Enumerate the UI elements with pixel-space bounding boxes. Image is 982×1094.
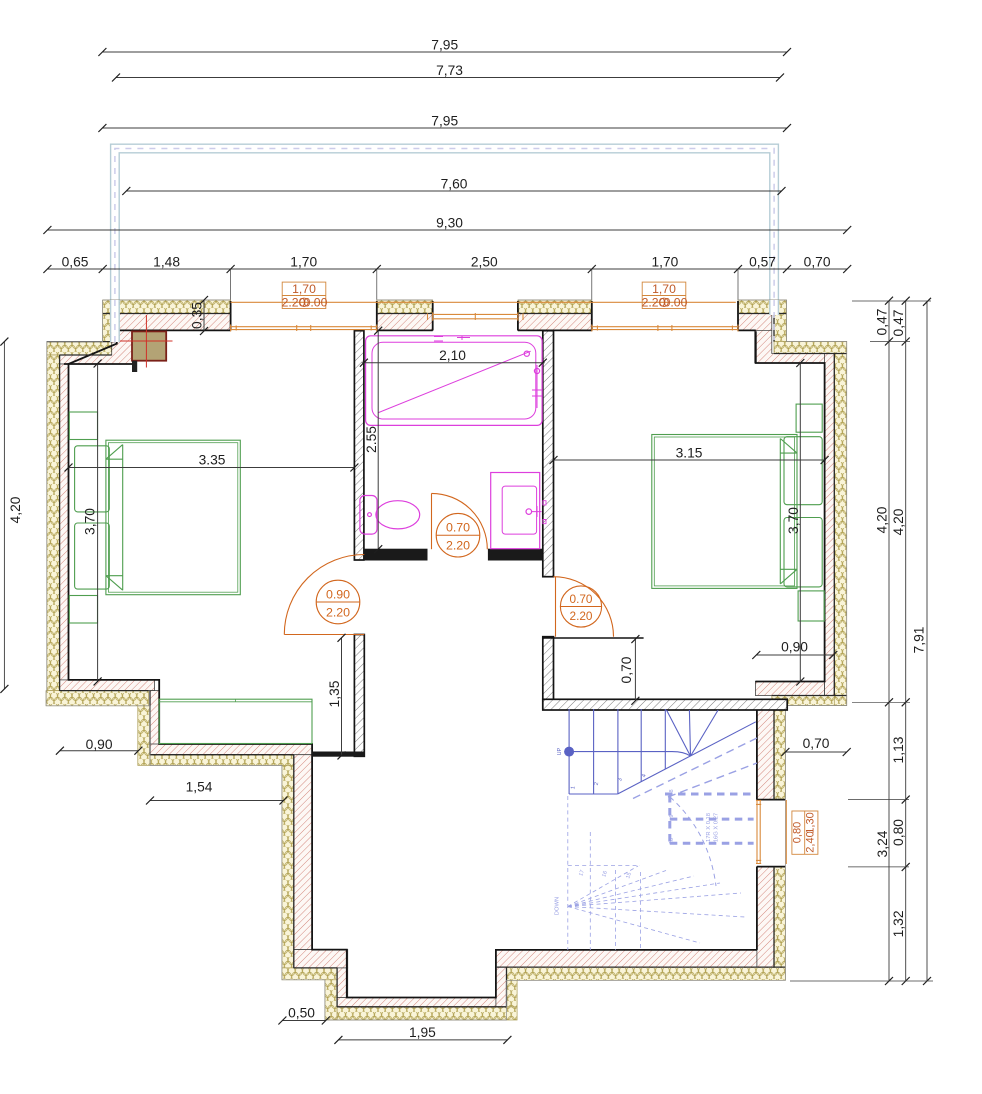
svg-text:4,20: 4,20 <box>8 496 23 523</box>
svg-text:3.15: 3.15 <box>676 446 703 461</box>
svg-text:0,90: 0,90 <box>86 737 113 752</box>
svg-text:0,80: 0,80 <box>792 822 804 843</box>
svg-text:0,65: 0,65 <box>62 255 89 270</box>
svg-text:0.00: 0.00 <box>664 296 688 310</box>
svg-text:1,30: 1,30 <box>805 812 817 833</box>
svg-text:2.20: 2.20 <box>570 609 593 623</box>
svg-text:7,73: 7,73 <box>436 63 463 78</box>
svg-text:2.20: 2.20 <box>326 606 350 620</box>
svg-text:0,70: 0,70 <box>619 656 634 683</box>
svg-text:7,91: 7,91 <box>912 627 927 654</box>
svg-text:0,47: 0,47 <box>891 310 906 337</box>
svg-text:0,35: 0,35 <box>190 302 205 329</box>
svg-text:4,20: 4,20 <box>891 508 906 535</box>
svg-text:0,80: 0,80 <box>891 819 906 846</box>
svg-text:0.00: 0.00 <box>304 296 328 310</box>
svg-text:3.35: 3.35 <box>199 453 226 468</box>
svg-text:7,60: 7,60 <box>441 177 468 192</box>
svg-text:0.90: 0.90 <box>326 588 350 602</box>
svg-text:0,70: 0,70 <box>804 255 831 270</box>
svg-text:0,70: 0,70 <box>803 736 830 751</box>
svg-text:0,57: 0,57 <box>749 255 776 270</box>
svg-text:2.20: 2.20 <box>446 539 470 553</box>
svg-text:DOWN: DOWN <box>555 897 561 915</box>
svg-text:1,48: 1,48 <box>153 255 180 270</box>
svg-text:1,70: 1,70 <box>651 255 678 270</box>
svg-text:2,50: 2,50 <box>471 255 498 270</box>
svg-text:3,24: 3,24 <box>875 830 890 857</box>
svg-text:4,20: 4,20 <box>875 506 890 533</box>
svg-text:2.55: 2.55 <box>364 426 379 453</box>
svg-text:1,54: 1,54 <box>186 780 213 795</box>
svg-text:1,95: 1,95 <box>409 1025 436 1040</box>
svg-text:1,70: 1,70 <box>292 282 316 296</box>
svg-text:2.20: 2.20 <box>282 296 306 310</box>
svg-text:7,95: 7,95 <box>431 114 458 129</box>
svg-text:0.70: 0.70 <box>570 592 593 606</box>
svg-text:1,32: 1,32 <box>891 910 906 937</box>
svg-text:2.20: 2.20 <box>642 296 666 310</box>
svg-text:2,10: 2,10 <box>439 348 466 363</box>
svg-text:8: 8 <box>669 789 675 792</box>
svg-text:9,30: 9,30 <box>436 216 463 231</box>
svg-text:7,95: 7,95 <box>431 38 458 53</box>
svg-text:1,70: 1,70 <box>290 255 317 270</box>
svg-text:1,13: 1,13 <box>891 736 906 763</box>
svg-text:16G X 0.27: 16G X 0.27 <box>714 813 720 842</box>
svg-text:3,70: 3,70 <box>786 507 801 534</box>
svg-text:1,70: 1,70 <box>652 282 676 296</box>
svg-text:0.70: 0.70 <box>446 521 470 535</box>
svg-text:10: 10 <box>669 838 675 844</box>
svg-text:1,35: 1,35 <box>327 680 342 707</box>
svg-text:3,70: 3,70 <box>83 508 98 535</box>
svg-text:0,47: 0,47 <box>875 309 890 336</box>
svg-text:9: 9 <box>669 814 675 817</box>
svg-text:17R X 0.18: 17R X 0.18 <box>706 813 712 842</box>
svg-text:UP: UP <box>557 747 563 755</box>
svg-text:0,50: 0,50 <box>288 1006 315 1021</box>
svg-text:0,90: 0,90 <box>781 640 808 655</box>
